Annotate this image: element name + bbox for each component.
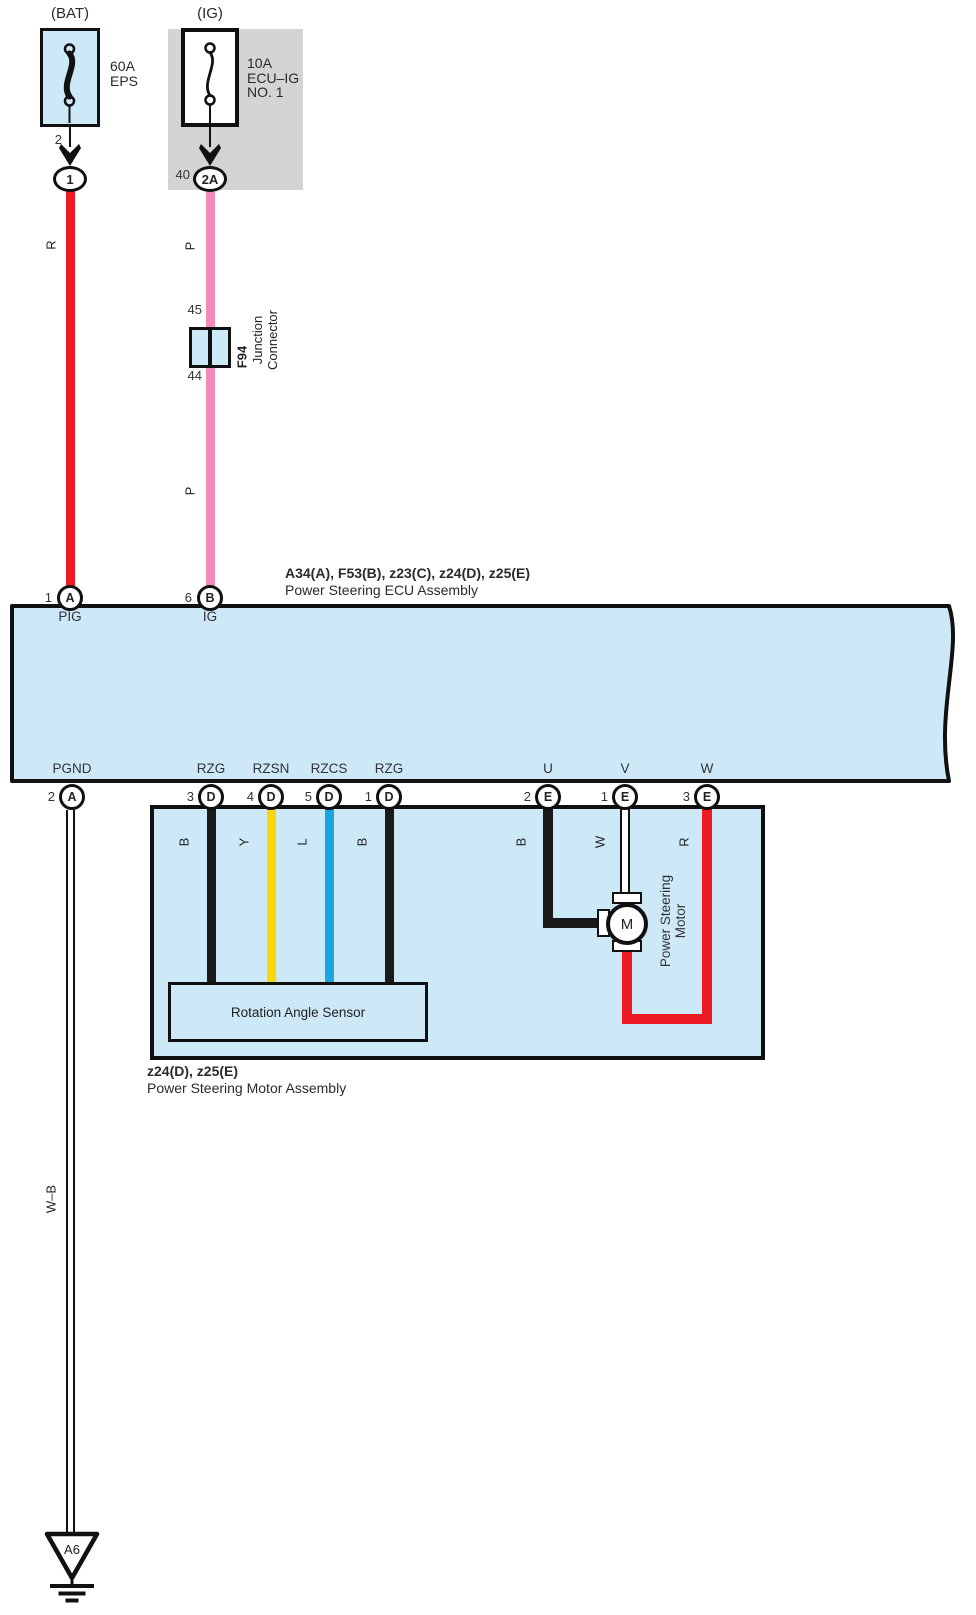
ecu-bottom-pin-connector: A [59,784,85,810]
ecu-bottom-pin-number: 4 [232,790,254,804]
wire-color-label-y: Y [237,838,252,847]
ecu-bottom-pin-connector: D [316,784,342,810]
ecu-bottom-pin-number: 2 [33,790,55,804]
wiring-diagram: (BAT) 60A EPS 2 1 R (IG) 10A ECU–IG NO. … [0,0,976,1615]
junction-connector-box [189,327,231,368]
wire-color-label-p: P [183,242,198,251]
ecu-top-pin-connector: B [197,585,223,611]
motor-wire-w-riser [622,948,632,1024]
ecu-port-label: RZSN [243,762,299,777]
ig-pin-number: 40 [168,168,190,182]
ecu-bottom-pin-connector: E [694,784,720,810]
ig-connector-oval: 2A [193,166,227,192]
ecu-bottom-pin-number: 5 [290,790,312,804]
bat-fuse-rating: 60A EPS [110,59,138,88]
junction-id: F94 [235,346,250,368]
ecu-port-label: PIG [46,610,94,625]
motor-symbol: M [606,903,648,945]
ignition-wire-pink [206,192,215,605]
ground-wire-wb [66,810,75,1537]
ig-fuse-box [181,28,239,127]
junction-pin-top: 45 [172,303,202,317]
motor-wire-v-white [620,809,630,894]
ecu-bottom-pin-connector: E [612,784,638,810]
fuse-icon [185,32,235,123]
ecu-port-label: PGND [40,762,104,777]
bat-title: (BAT) [30,7,110,22]
motor-assembly-code: z24(D), z25(E) [147,1064,238,1079]
ecu-bottom-pin-connector: D [258,784,284,810]
ecu-port-label: RZG [365,762,413,777]
ecu-code-line: A34(A), F53(B), z23(C), z24(D), z25(E) [285,566,530,581]
motor-wire-u-vertical [543,809,553,928]
ecu-port-label: U [530,762,566,777]
ecu-top-pin-connector: A [57,585,83,611]
sensor-wire-black-2 [385,809,394,985]
motor-assembly-name: Power Steering Motor Assembly [147,1081,346,1096]
ecu-bottom-pin-connector: D [198,784,224,810]
ground-symbol: A6 [36,1526,108,1614]
ecu-box [8,600,968,788]
wire-color-label-l: L [295,838,310,845]
motor-symbol-letter: M [621,916,634,933]
motor-wire-w-vertical [702,809,712,1024]
ecu-bottom-pin-number: 3 [172,790,194,804]
ground-id: A6 [64,1542,80,1557]
rotation-angle-sensor-box: Rotation Angle Sensor [168,982,428,1042]
ecu-port-label: RZCS [301,762,357,777]
ecu-bottom-pin-connector: E [535,784,561,810]
ecu-bottom-pin-number: 2 [509,790,531,804]
ecu-bottom-pin-number: 1 [586,790,608,804]
wire-color-label-b: B [514,838,529,847]
bat-fuse-box [40,28,100,127]
ecu-top-pin-number: 1 [30,591,52,605]
wire-color-label-r: R [677,837,692,846]
ecu-port-label: RZG [187,762,235,777]
bat-connector-oval: 1 [53,166,87,192]
wire-color-label-wb: W–B [44,1185,59,1213]
motor-wire-w-horizontal [622,1014,712,1024]
ecu-top-pin-number: 6 [170,591,192,605]
wire-color-label-w: W [593,836,608,848]
wire-color-label-b: B [355,838,370,847]
ig-fuse-rating: 10A ECU–IG NO. 1 [247,56,299,100]
motor-label: Power Steering Motor [658,875,688,967]
sensor-wire-yellow [267,809,276,985]
fuse-icon [43,31,96,123]
ecu-bottom-pin-connector: D [376,784,402,810]
wire-color-label-p: P [183,487,198,496]
ecu-port-label: V [607,762,643,777]
sensor-wire-black-1 [207,809,216,985]
wire-color-label-b: B [177,838,192,847]
junction-name: Junction Connector [250,310,280,370]
ecu-port-label: W [689,762,725,777]
junction-pin-bottom: 44 [172,369,202,383]
down-arrow-icon [59,144,81,166]
ecu-bottom-pin-number: 3 [668,790,690,804]
rotation-angle-sensor-label: Rotation Angle Sensor [231,1005,365,1020]
junction-divider [208,330,212,365]
battery-wire-red [66,190,75,605]
sensor-wire-blue [325,809,334,985]
ecu-port-label: IG [186,610,234,625]
down-arrow-icon [199,144,221,166]
ig-title: (IG) [170,7,250,22]
ecu-name: Power Steering ECU Assembly [285,583,478,598]
bat-pin-number: 2 [40,133,62,147]
wire-color-label-r: R [44,240,59,249]
ecu-bottom-pin-number: 1 [350,790,372,804]
